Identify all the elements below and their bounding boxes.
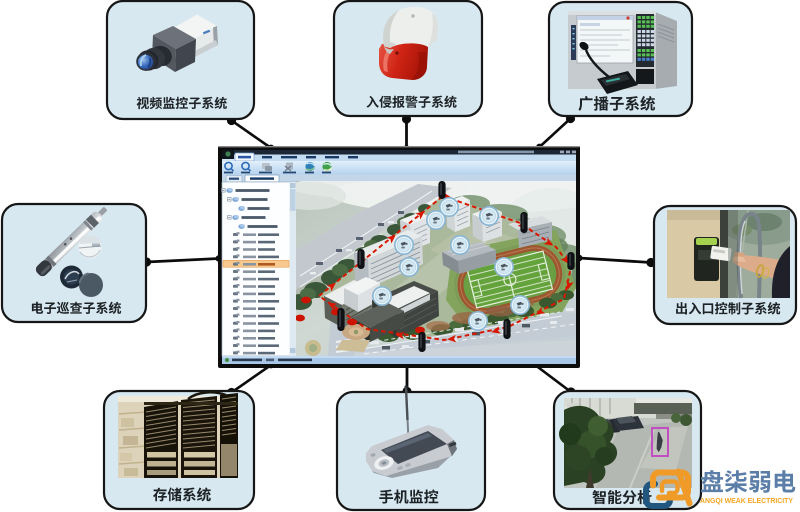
svg-text:ANGQI WEAK ELECTRICITY: ANGQI WEAK ELECTRICITY [700, 496, 793, 505]
